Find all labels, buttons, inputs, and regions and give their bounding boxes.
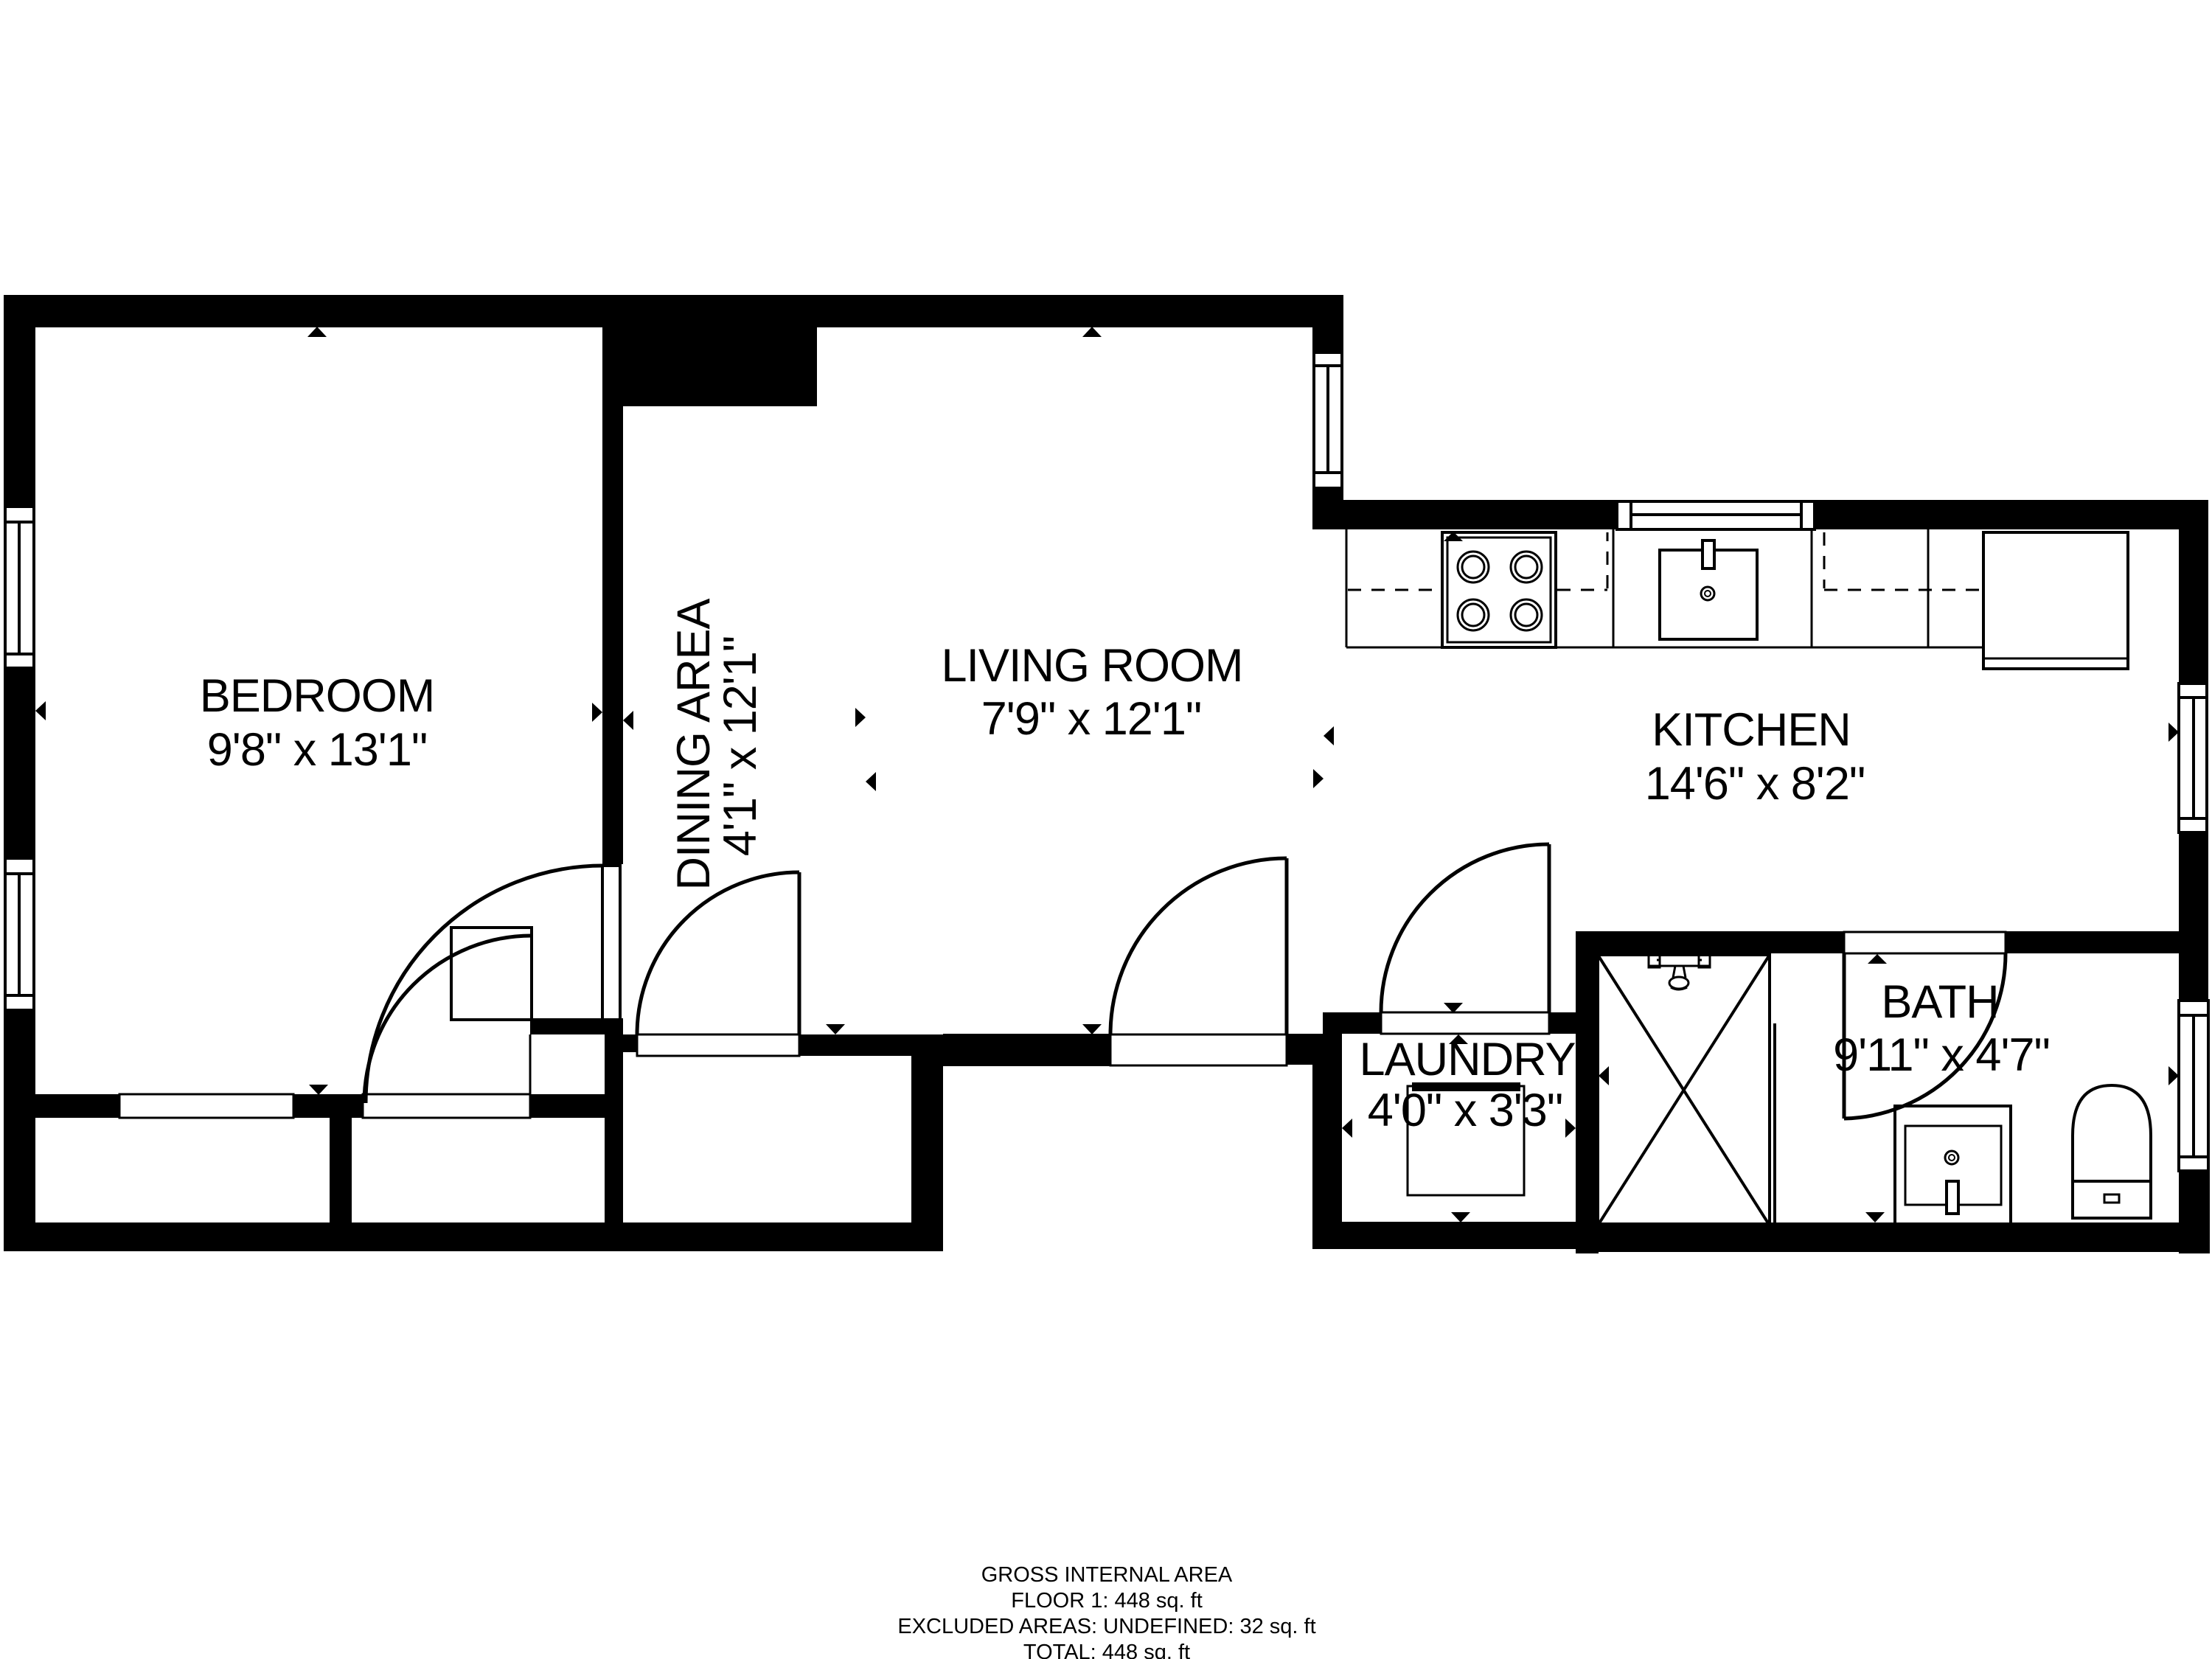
svg-text:BEDROOM: BEDROOM bbox=[200, 670, 435, 722]
svg-text:LAUNDRY: LAUNDRY bbox=[1360, 1034, 1576, 1085]
svg-text:DINING AREA: DINING AREA bbox=[668, 598, 720, 890]
svg-text:9'8" x 13'1": 9'8" x 13'1" bbox=[207, 724, 427, 776]
svg-text:14'6" x 8'2": 14'6" x 8'2" bbox=[1645, 758, 1865, 810]
svg-text:4'0" x 3'3": 4'0" x 3'3" bbox=[1368, 1085, 1562, 1136]
svg-text:FLOOR 1: 448 sq. ft: FLOOR 1: 448 sq. ft bbox=[1011, 1589, 1203, 1613]
svg-text:4'1" x 12'1": 4'1" x 12'1" bbox=[714, 636, 766, 856]
svg-text:BATH: BATH bbox=[1881, 976, 1998, 1028]
svg-text:LIVING ROOM: LIVING ROOM bbox=[941, 640, 1242, 692]
svg-text:TOTAL: 448 sq. ft: TOTAL: 448 sq. ft bbox=[1023, 1641, 1190, 1659]
svg-text:7'9" x 12'1": 7'9" x 12'1" bbox=[981, 693, 1201, 745]
svg-text:EXCLUDED AREAS: UNDEFINED: 32: EXCLUDED AREAS: UNDEFINED: 32 sq. ft bbox=[897, 1615, 1315, 1638]
svg-text:9'11" x 4'7": 9'11" x 4'7" bbox=[1833, 1029, 2050, 1081]
svg-text:GROSS INTERNAL AREA: GROSS INTERNAL AREA bbox=[981, 1563, 1233, 1587]
svg-text:KITCHEN: KITCHEN bbox=[1652, 704, 1851, 756]
